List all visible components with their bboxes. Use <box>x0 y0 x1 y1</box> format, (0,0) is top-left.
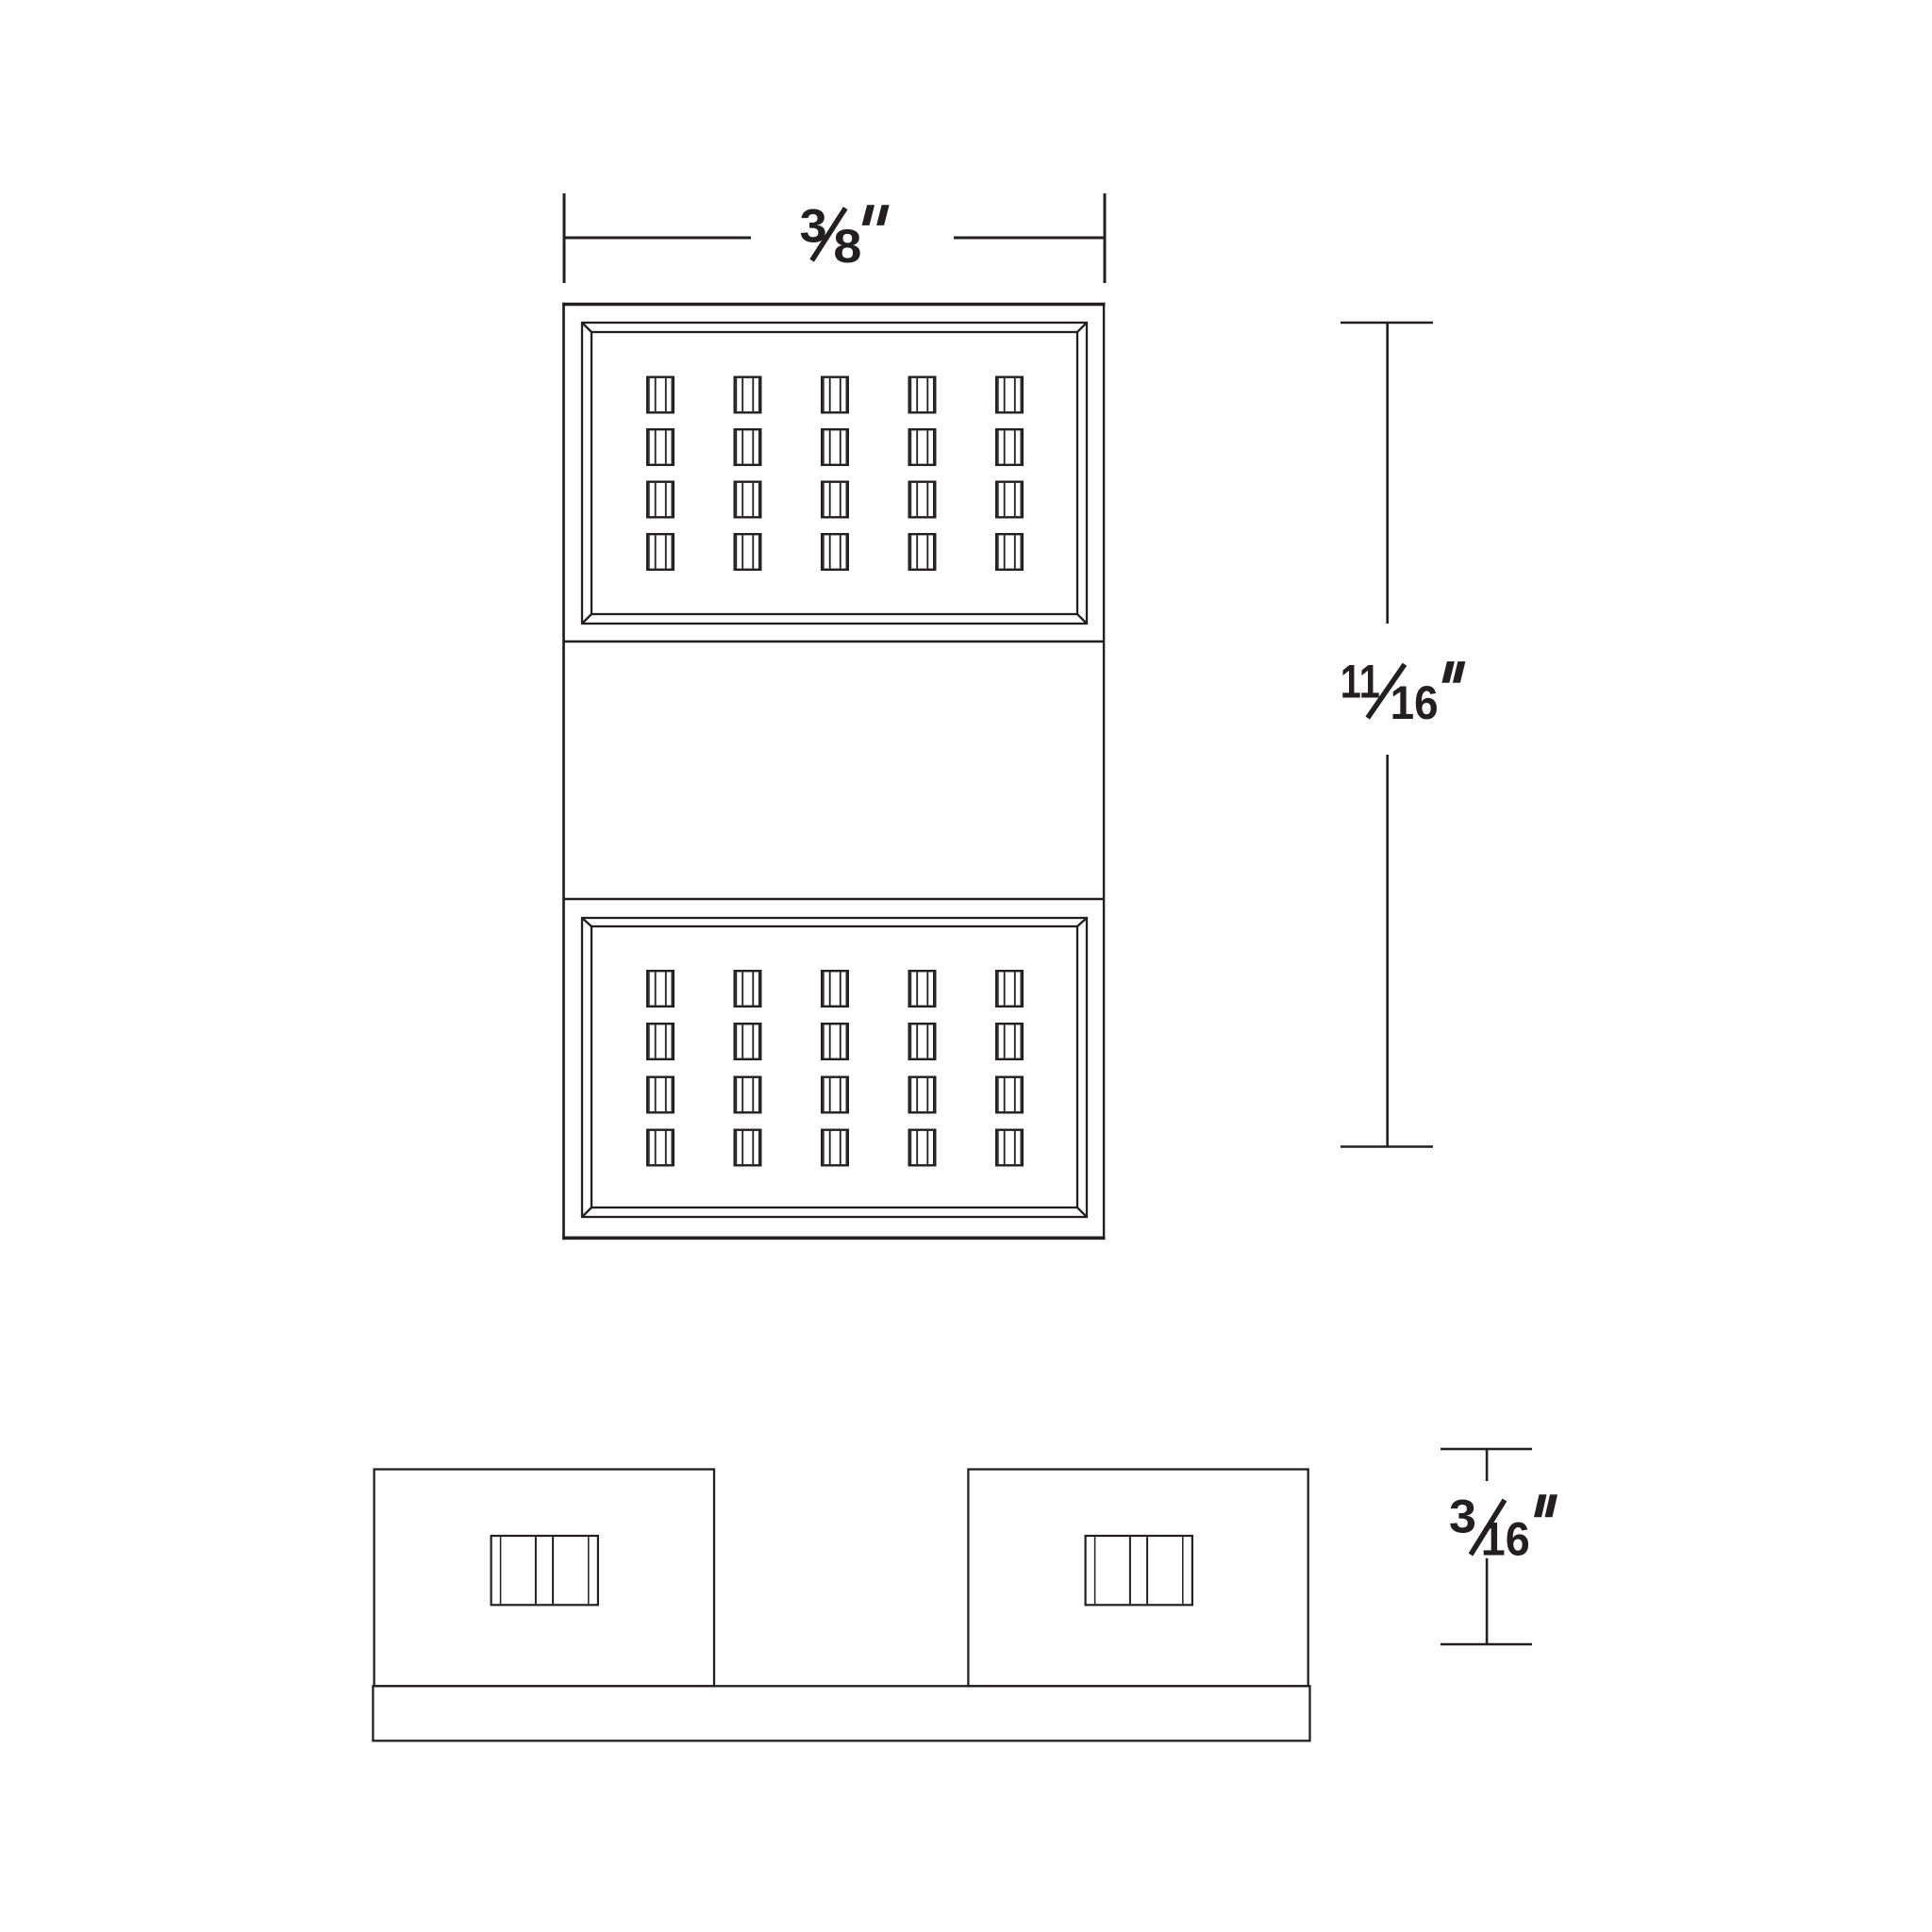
svg-text:3: 3 <box>1449 1491 1476 1543</box>
svg-text:8: 8 <box>833 220 861 273</box>
svg-text:16: 16 <box>1391 676 1439 729</box>
svg-text:16: 16 <box>1481 1512 1530 1565</box>
svg-text:11: 11 <box>1341 655 1380 708</box>
